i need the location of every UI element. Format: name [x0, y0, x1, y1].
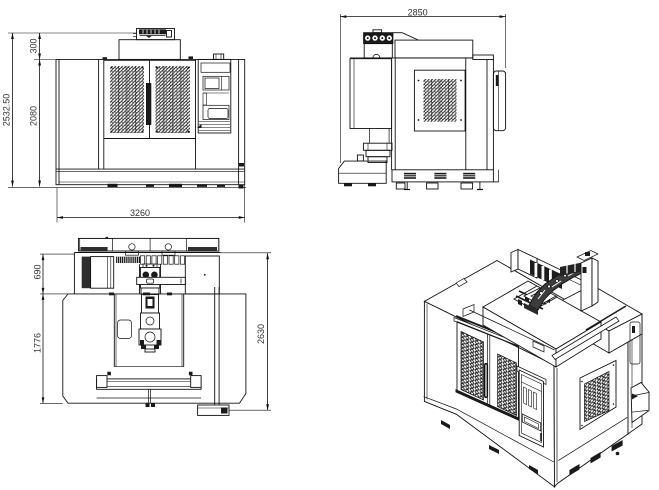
svg-text:3260: 3260 [130, 208, 150, 218]
svg-text:2630: 2630 [256, 324, 266, 344]
svg-text:2080: 2080 [29, 106, 39, 126]
svg-text:2850: 2850 [408, 8, 428, 18]
svg-text:1776: 1776 [33, 333, 43, 353]
svg-text:300: 300 [29, 38, 39, 53]
svg-text:690: 690 [33, 264, 43, 279]
svg-text:2532.50: 2532.50 [2, 94, 12, 127]
